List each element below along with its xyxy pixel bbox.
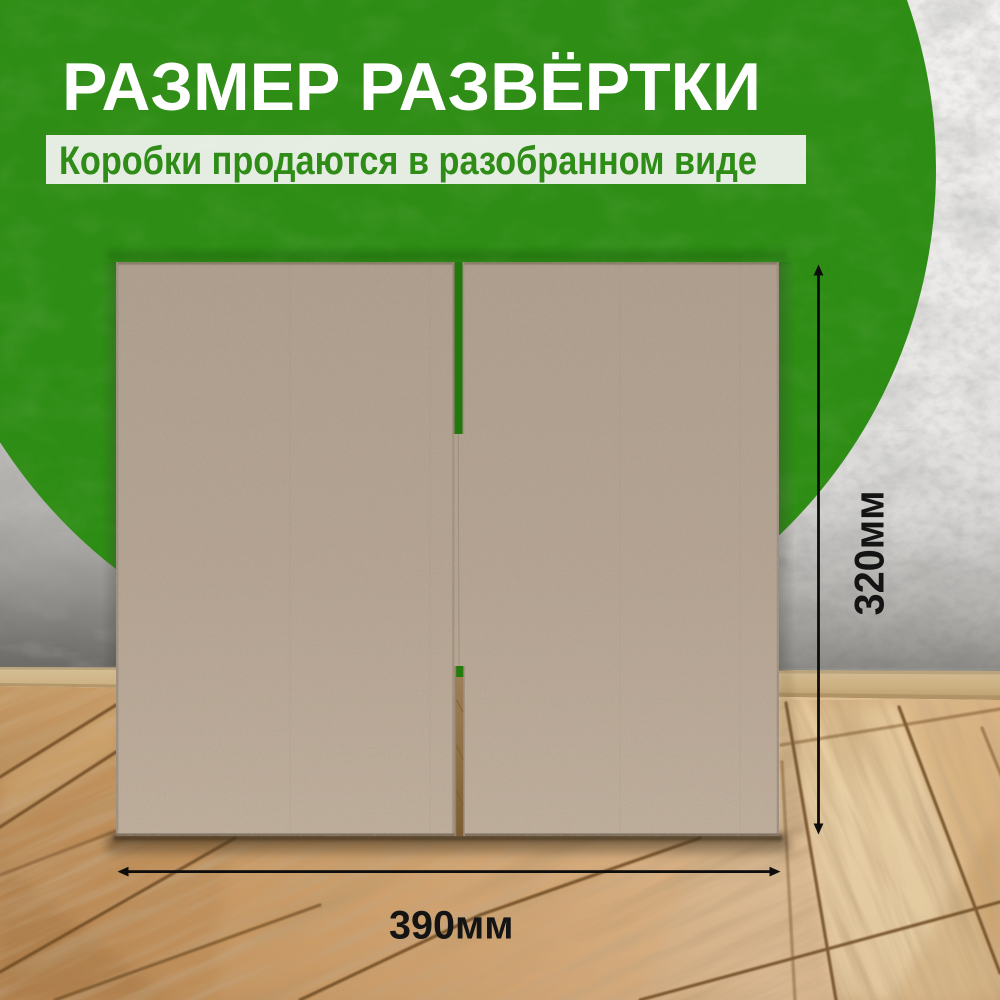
svg-text:390мм: 390мм — [389, 904, 514, 948]
svg-text:Коробки продаются в разобранно: Коробки продаются в разобранном виде — [59, 139, 757, 183]
svg-text:РАЗМЕР РАЗВЁРТКИ: РАЗМЕР РАЗВЁРТКИ — [62, 49, 761, 125]
svg-text:320мм: 320мм — [846, 491, 893, 616]
